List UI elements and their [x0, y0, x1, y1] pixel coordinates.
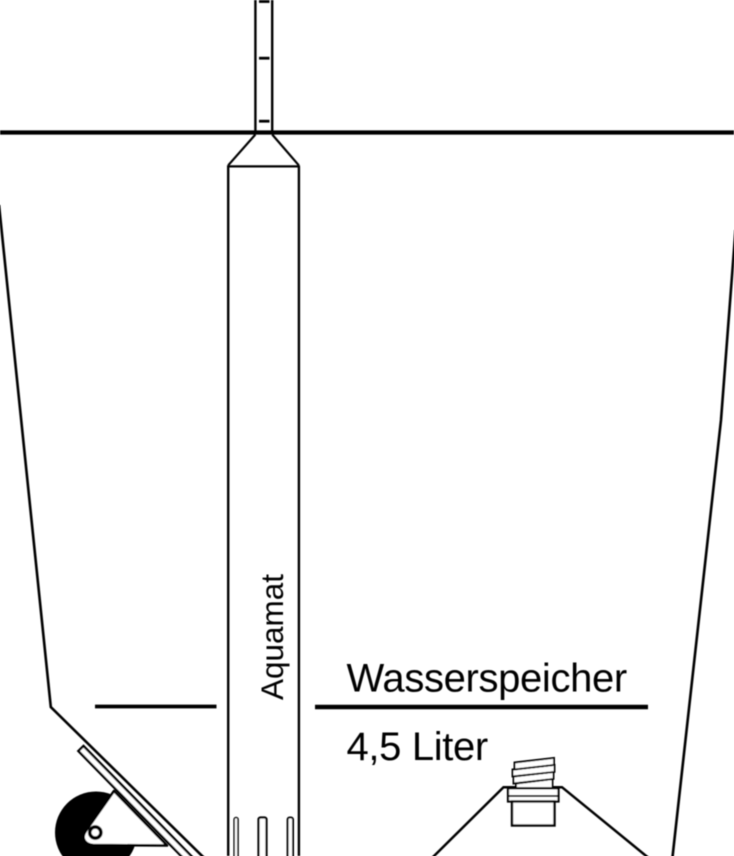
svg-text:Wasserspeicher: Wasserspeicher — [347, 657, 627, 701]
svg-text:4,5 Liter: 4,5 Liter — [347, 725, 488, 769]
svg-text:Aquamat: Aquamat — [254, 574, 290, 700]
